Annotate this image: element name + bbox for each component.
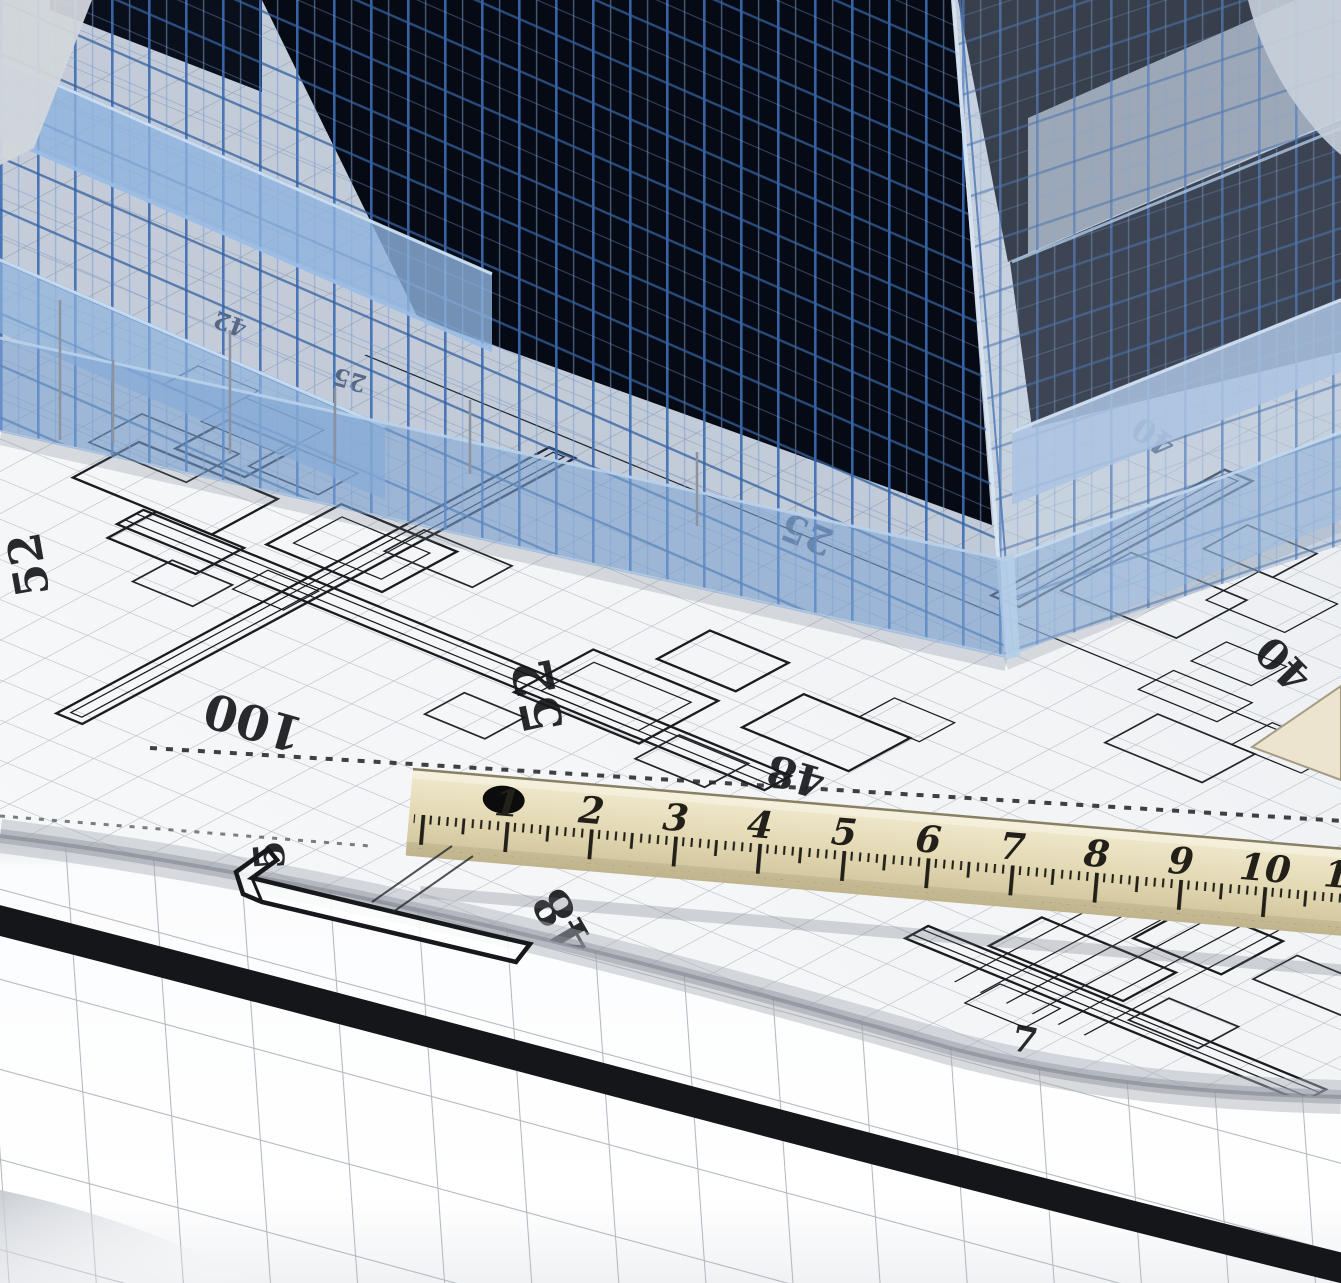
ruler-number-5: 5 bbox=[829, 809, 858, 855]
ruler-number-2: 2 bbox=[576, 787, 606, 833]
blueprint-scene: 42 25 25 40 52 100 52 48 48 40 bbox=[0, 0, 1341, 1283]
ruler-number-1: 1 bbox=[493, 780, 522, 826]
ruler-number-10: 10 bbox=[1238, 844, 1293, 892]
ruler-number-7: 7 bbox=[998, 823, 1028, 869]
ruler-number-8: 8 bbox=[1081, 830, 1111, 876]
ruler-number-6: 6 bbox=[914, 816, 943, 862]
ruler-number-3: 3 bbox=[661, 794, 690, 840]
plan-number-5: 5 bbox=[244, 839, 295, 872]
scene-canvas: 42 25 25 40 52 100 52 48 48 40 bbox=[0, 0, 1341, 1283]
ruler-number-11: 11 bbox=[1322, 851, 1341, 899]
ruler-number-4: 4 bbox=[745, 802, 774, 848]
ruler-number-9: 9 bbox=[1166, 838, 1195, 884]
